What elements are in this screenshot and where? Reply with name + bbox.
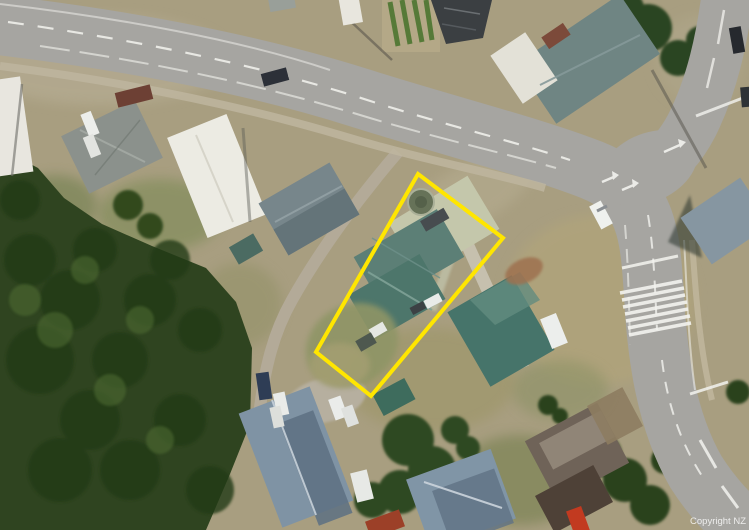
copyright-watermark: Copyright NZ	[690, 516, 746, 527]
garden-rows	[382, 0, 440, 52]
aerial-map-image: Copyright NZ	[0, 0, 749, 530]
aerial-map-viewport[interactable]: Copyright NZ	[0, 0, 749, 530]
